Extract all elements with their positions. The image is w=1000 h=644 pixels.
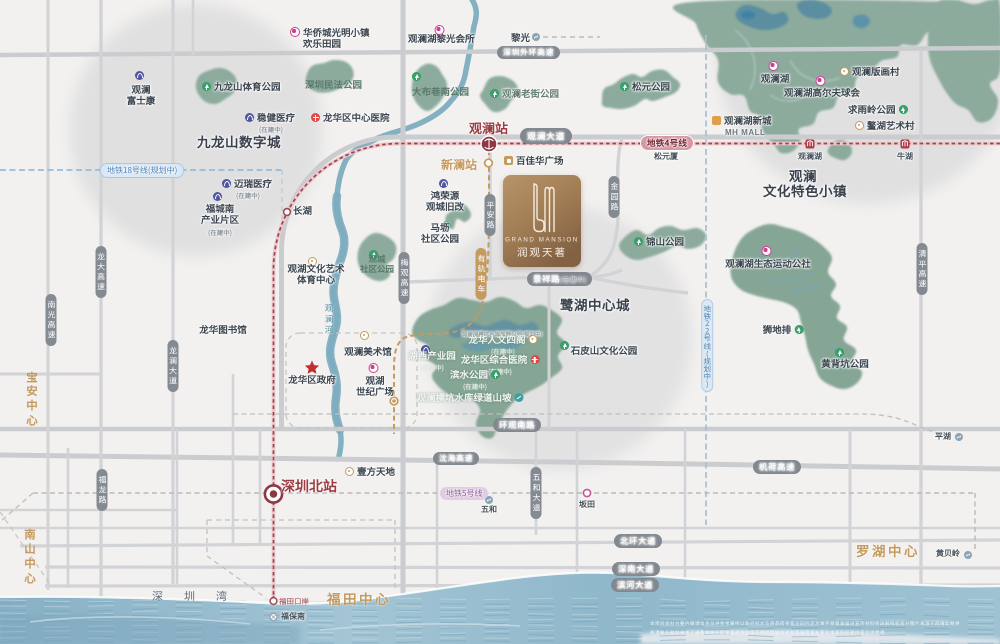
svg-text:GRAND MANSION: GRAND MANSION <box>505 237 579 244</box>
svg-text:润观天著: 润观天著 <box>517 245 567 260</box>
